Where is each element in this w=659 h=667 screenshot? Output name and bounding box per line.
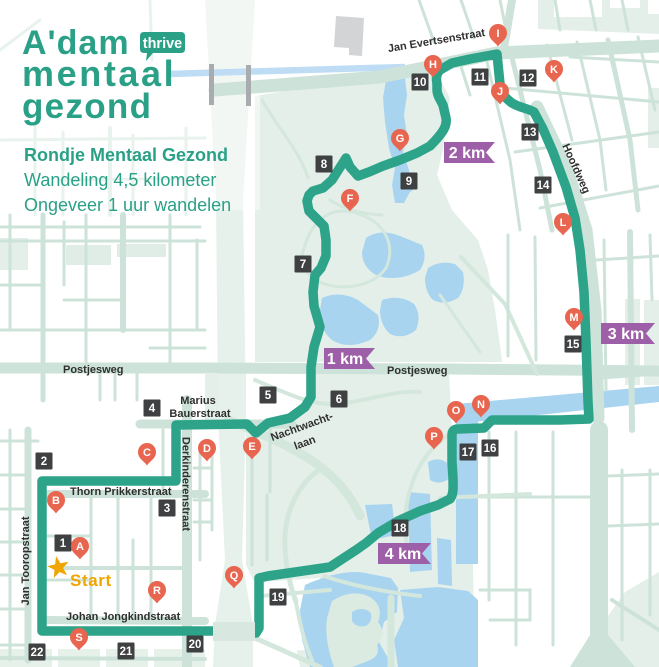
svg-text:2 km: 2 km (449, 145, 485, 162)
svg-text:4: 4 (149, 403, 156, 415)
svg-text:Bauerstraat: Bauerstraat (169, 408, 230, 420)
svg-text:Postjesweg: Postjesweg (387, 365, 448, 377)
svg-text:14: 14 (537, 180, 550, 192)
svg-text:15: 15 (567, 339, 580, 351)
svg-text:10: 10 (414, 77, 427, 89)
svg-text:G: G (396, 133, 405, 145)
svg-text:1 km: 1 km (327, 351, 363, 368)
svg-text:3 km: 3 km (608, 326, 644, 343)
svg-text:4 km: 4 km (385, 546, 421, 563)
svg-text:Start: Start (70, 571, 112, 590)
svg-text:20: 20 (189, 639, 202, 651)
svg-text:S: S (75, 632, 82, 644)
svg-text:13: 13 (524, 127, 537, 139)
svg-text:Rondje Mentaal Gezond: Rondje Mentaal Gezond (24, 145, 228, 165)
svg-text:11: 11 (474, 72, 487, 84)
svg-text:Ongeveer 1 uur wandelen: Ongeveer 1 uur wandelen (24, 195, 231, 215)
svg-text:7: 7 (300, 259, 306, 271)
svg-text:2: 2 (41, 456, 47, 468)
svg-text:J: J (497, 86, 503, 98)
svg-text:Derkinderenstraat: Derkinderenstraat (180, 437, 192, 531)
svg-text:Thorn Prikkerstraat: Thorn Prikkerstraat (70, 486, 172, 498)
svg-text:17: 17 (462, 447, 475, 459)
svg-text:16: 16 (484, 443, 497, 455)
svg-text:12: 12 (522, 73, 535, 85)
svg-text:thrive: thrive (143, 36, 183, 52)
svg-text:A: A (76, 541, 84, 553)
svg-text:R: R (153, 585, 161, 597)
svg-text:Johan Jongkindstraat: Johan Jongkindstraat (66, 611, 181, 623)
svg-text:P: P (430, 431, 437, 443)
svg-text:M: M (569, 312, 578, 324)
svg-text:O: O (452, 405, 461, 417)
svg-text:3: 3 (164, 503, 170, 515)
svg-text:Jan Tooropstraat: Jan Tooropstraat (20, 516, 32, 605)
svg-text:18: 18 (394, 523, 407, 535)
svg-text:21: 21 (120, 646, 133, 658)
svg-text:Wandeling 4,5 kilometer: Wandeling 4,5 kilometer (24, 170, 216, 190)
svg-text:1: 1 (60, 538, 67, 550)
svg-text:Q: Q (230, 570, 239, 582)
svg-text:6: 6 (336, 394, 342, 406)
svg-text:19: 19 (272, 592, 285, 604)
svg-text:8: 8 (321, 159, 328, 171)
svg-text:K: K (550, 64, 558, 76)
svg-text:Postjesweg: Postjesweg (63, 364, 124, 376)
svg-text:C: C (143, 447, 151, 459)
svg-text:5: 5 (265, 390, 272, 402)
svg-text:22: 22 (31, 647, 44, 659)
svg-text:I: I (496, 28, 499, 40)
svg-text:N: N (477, 399, 485, 411)
svg-text:D: D (203, 443, 211, 455)
svg-text:B: B (52, 495, 60, 507)
svg-text:Marius: Marius (180, 395, 215, 407)
svg-text:F: F (347, 193, 354, 205)
svg-text:E: E (248, 441, 255, 453)
svg-text:L: L (560, 217, 567, 229)
svg-text:9: 9 (406, 176, 412, 188)
svg-text:gezond: gezond (22, 87, 152, 126)
svg-text:H: H (429, 59, 437, 71)
